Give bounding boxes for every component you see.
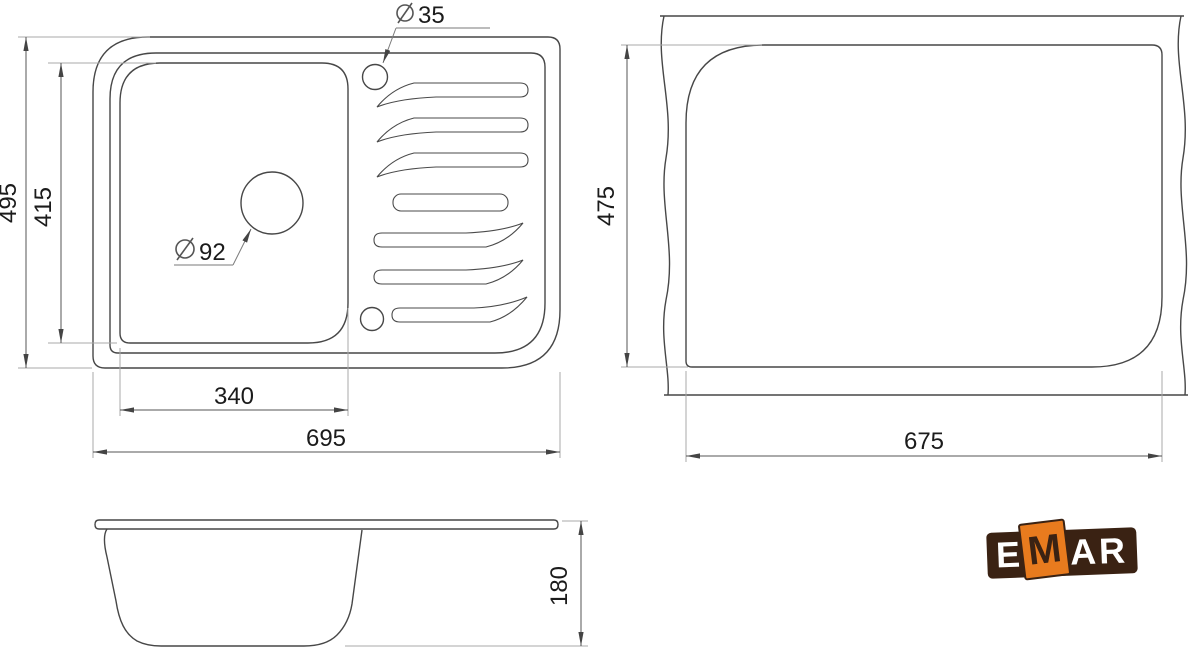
- faucet-hole: [363, 65, 388, 90]
- dim-label-180: 180: [546, 566, 573, 606]
- callout-drain-hole: 92: [174, 229, 251, 266]
- callout-faucet-hole: 35: [383, 2, 490, 63]
- drain-hole: [241, 172, 303, 234]
- emar-letter-e: E: [995, 537, 1020, 574]
- dim-label-675: 675: [904, 428, 944, 455]
- dim-label-340: 340: [214, 383, 254, 410]
- dim-label-495: 495: [0, 183, 22, 223]
- dimension-475: 475: [593, 45, 762, 367]
- drainboard-rib: [392, 297, 527, 322]
- emar-letter-m-tile: M: [1018, 518, 1072, 580]
- emar-logo: E A R M: [985, 521, 1141, 591]
- cutout-outline: [686, 45, 1162, 367]
- dimension-695: 695: [93, 372, 560, 458]
- sink-side-view: 180: [95, 520, 588, 646]
- cutout-view: 475 675: [593, 16, 1188, 462]
- bowl-outline: [120, 63, 348, 343]
- dimension-495: 495: [0, 37, 150, 368]
- drainboard-rib: [393, 194, 508, 211]
- emar-letter-r: R: [1098, 533, 1125, 570]
- drainboard-rib: [377, 83, 528, 107]
- dim-label-415: 415: [30, 187, 57, 227]
- dimension-180: 180: [345, 521, 588, 646]
- countertop-break-line-right: [1178, 16, 1186, 395]
- drain-hole-diameter-label: 92: [199, 239, 226, 266]
- drainboard-rib: [374, 260, 523, 284]
- emar-letter-a: A: [1069, 534, 1096, 571]
- dimension-340: 340: [120, 308, 348, 416]
- faucet-hole-diameter-label: 35: [418, 2, 445, 29]
- diameter-icon: [176, 238, 194, 260]
- dim-label-475: 475: [593, 186, 620, 226]
- drainboard-rib: [377, 153, 528, 177]
- sink-top-view: 495 415 340 695 3: [0, 2, 560, 458]
- diameter-icon: [397, 3, 413, 23]
- countertop-break-line-left: [661, 16, 669, 395]
- drawing-canvas: 495 415 340 695 3: [0, 0, 1190, 648]
- drainboard-ribs: [374, 83, 528, 322]
- emar-letter-m: M: [1026, 528, 1064, 572]
- side-bowl-profile: [104, 529, 362, 646]
- side-rim-outline: [95, 520, 558, 529]
- dim-label-695: 695: [306, 425, 346, 452]
- drainboard-rib: [374, 223, 523, 247]
- drainboard-rib: [377, 118, 528, 142]
- overflow-hole: [361, 308, 384, 331]
- dimension-675: 675: [686, 371, 1162, 462]
- sink-outer-outline: [93, 37, 560, 368]
